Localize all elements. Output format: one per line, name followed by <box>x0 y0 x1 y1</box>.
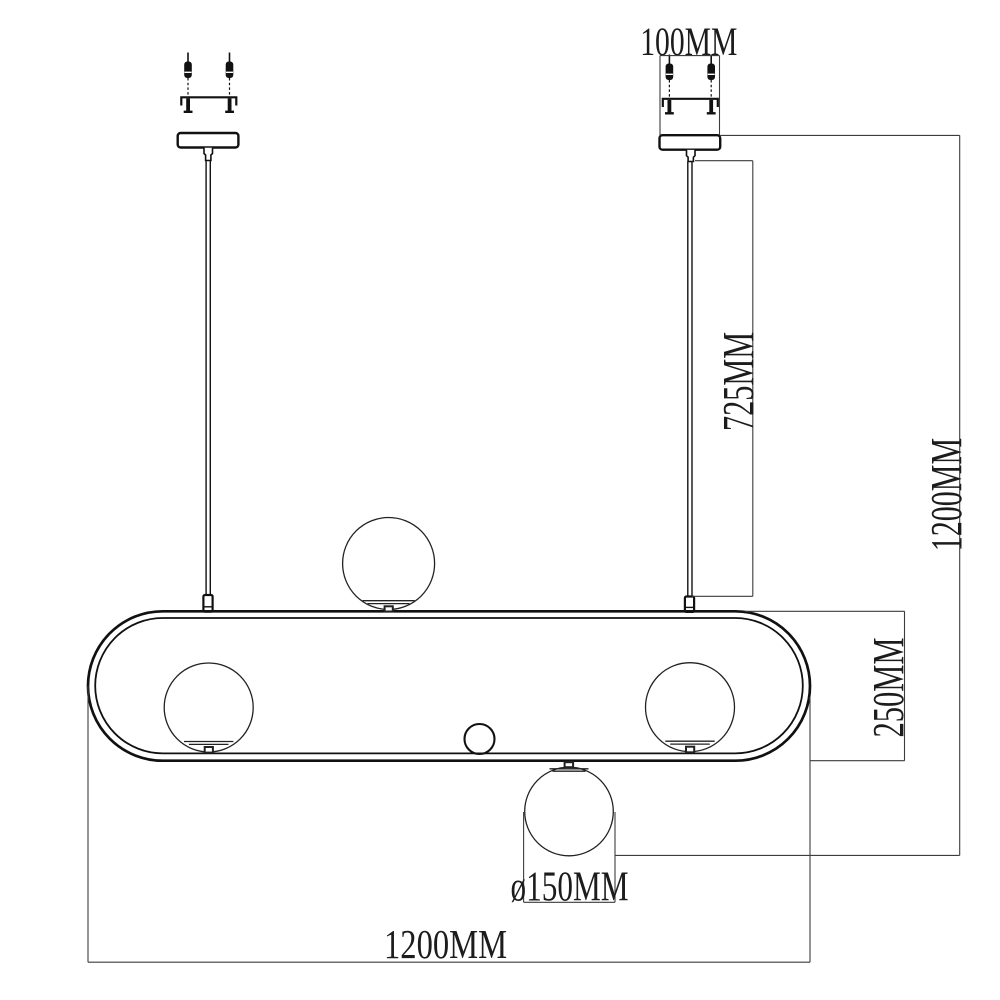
svg-text:250MM: 250MM <box>865 637 914 737</box>
svg-text:1200MM: 1200MM <box>384 922 507 967</box>
svg-text:1200MM: 1200MM <box>922 438 971 551</box>
svg-text:100MM: 100MM <box>640 20 737 64</box>
svg-text:ø150MM: ø150MM <box>511 864 629 911</box>
svg-text:725MM: 725MM <box>715 332 764 431</box>
